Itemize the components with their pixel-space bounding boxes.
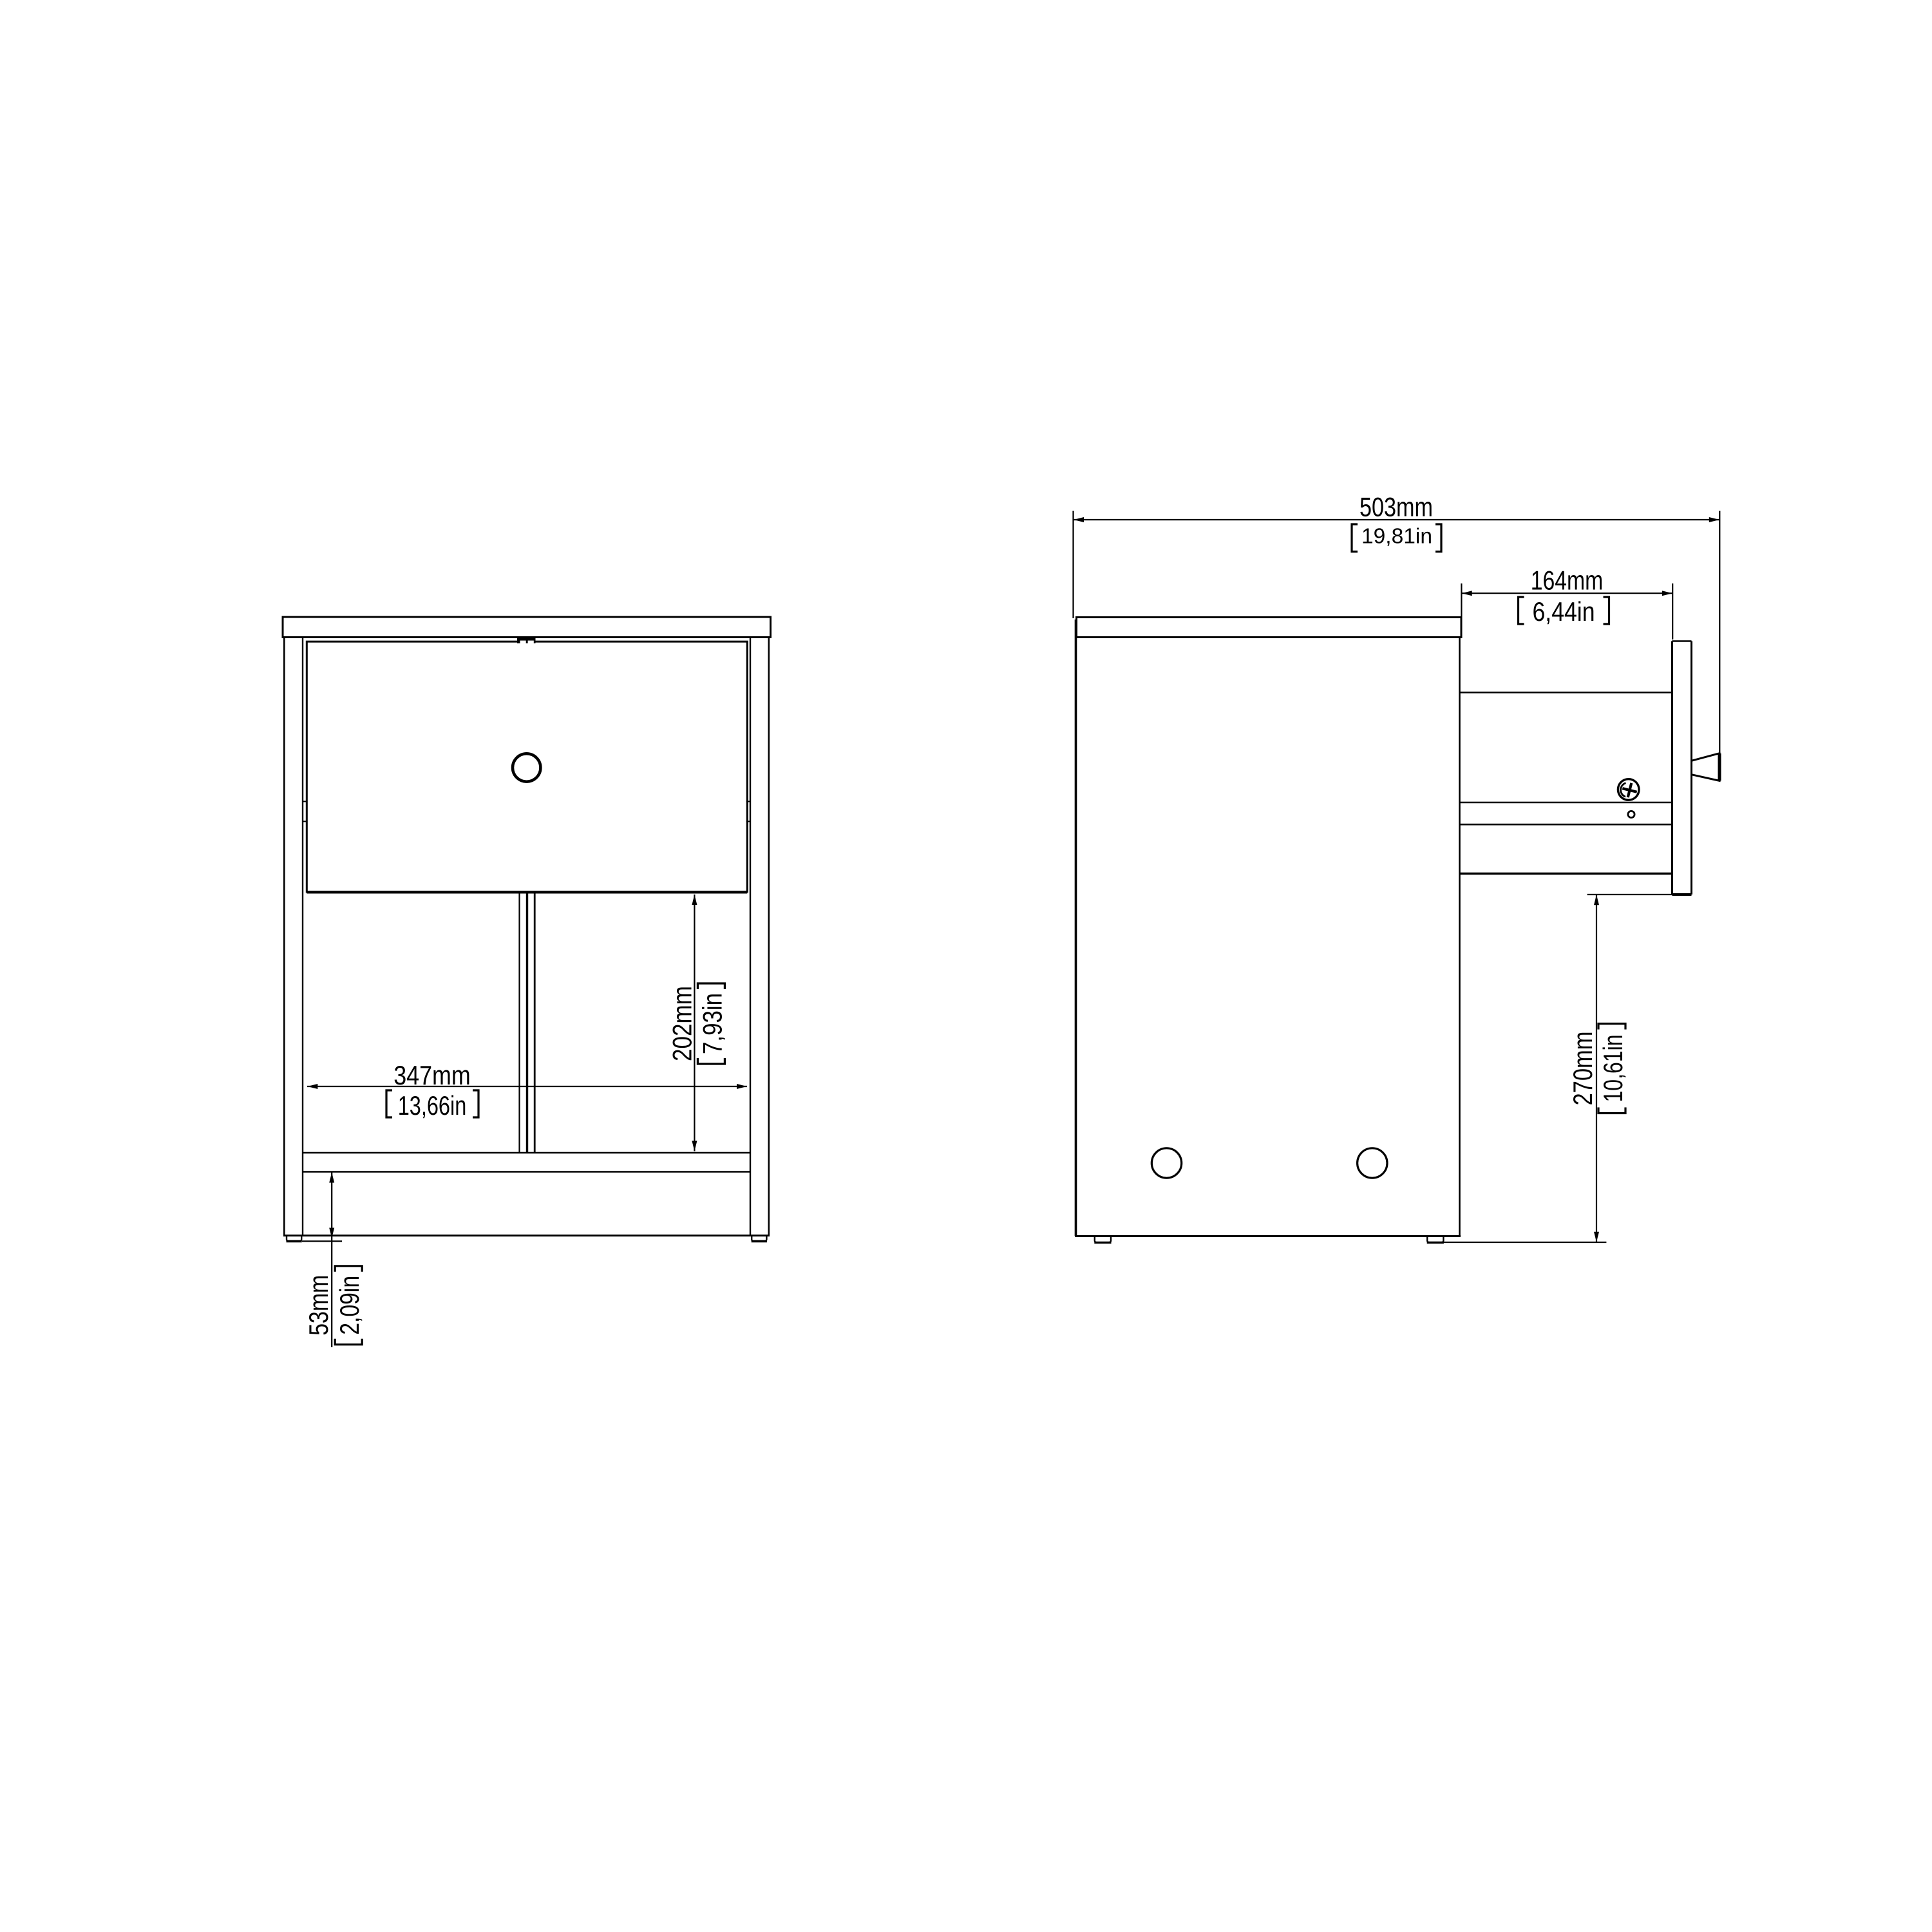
svg-text:53mm: 53mm <box>303 1275 334 1336</box>
svg-text:202mm: 202mm <box>667 986 697 1061</box>
svg-text:2,09in: 2,09in <box>334 1276 365 1335</box>
svg-text:13,66in: 13,66in <box>398 1090 467 1121</box>
svg-text:347mm: 347mm <box>393 1060 471 1090</box>
svg-text:19,81in: 19,81in <box>1361 524 1432 548</box>
svg-text:503mm: 503mm <box>1359 492 1433 522</box>
svg-text:6,44in: 6,44in <box>1533 596 1595 627</box>
svg-text:164mm: 164mm <box>1531 565 1604 596</box>
svg-text:7,93in: 7,93in <box>697 993 727 1054</box>
svg-text:10,61in: 10,61in <box>1598 1035 1628 1103</box>
svg-text:270mm: 270mm <box>1567 1032 1598 1106</box>
